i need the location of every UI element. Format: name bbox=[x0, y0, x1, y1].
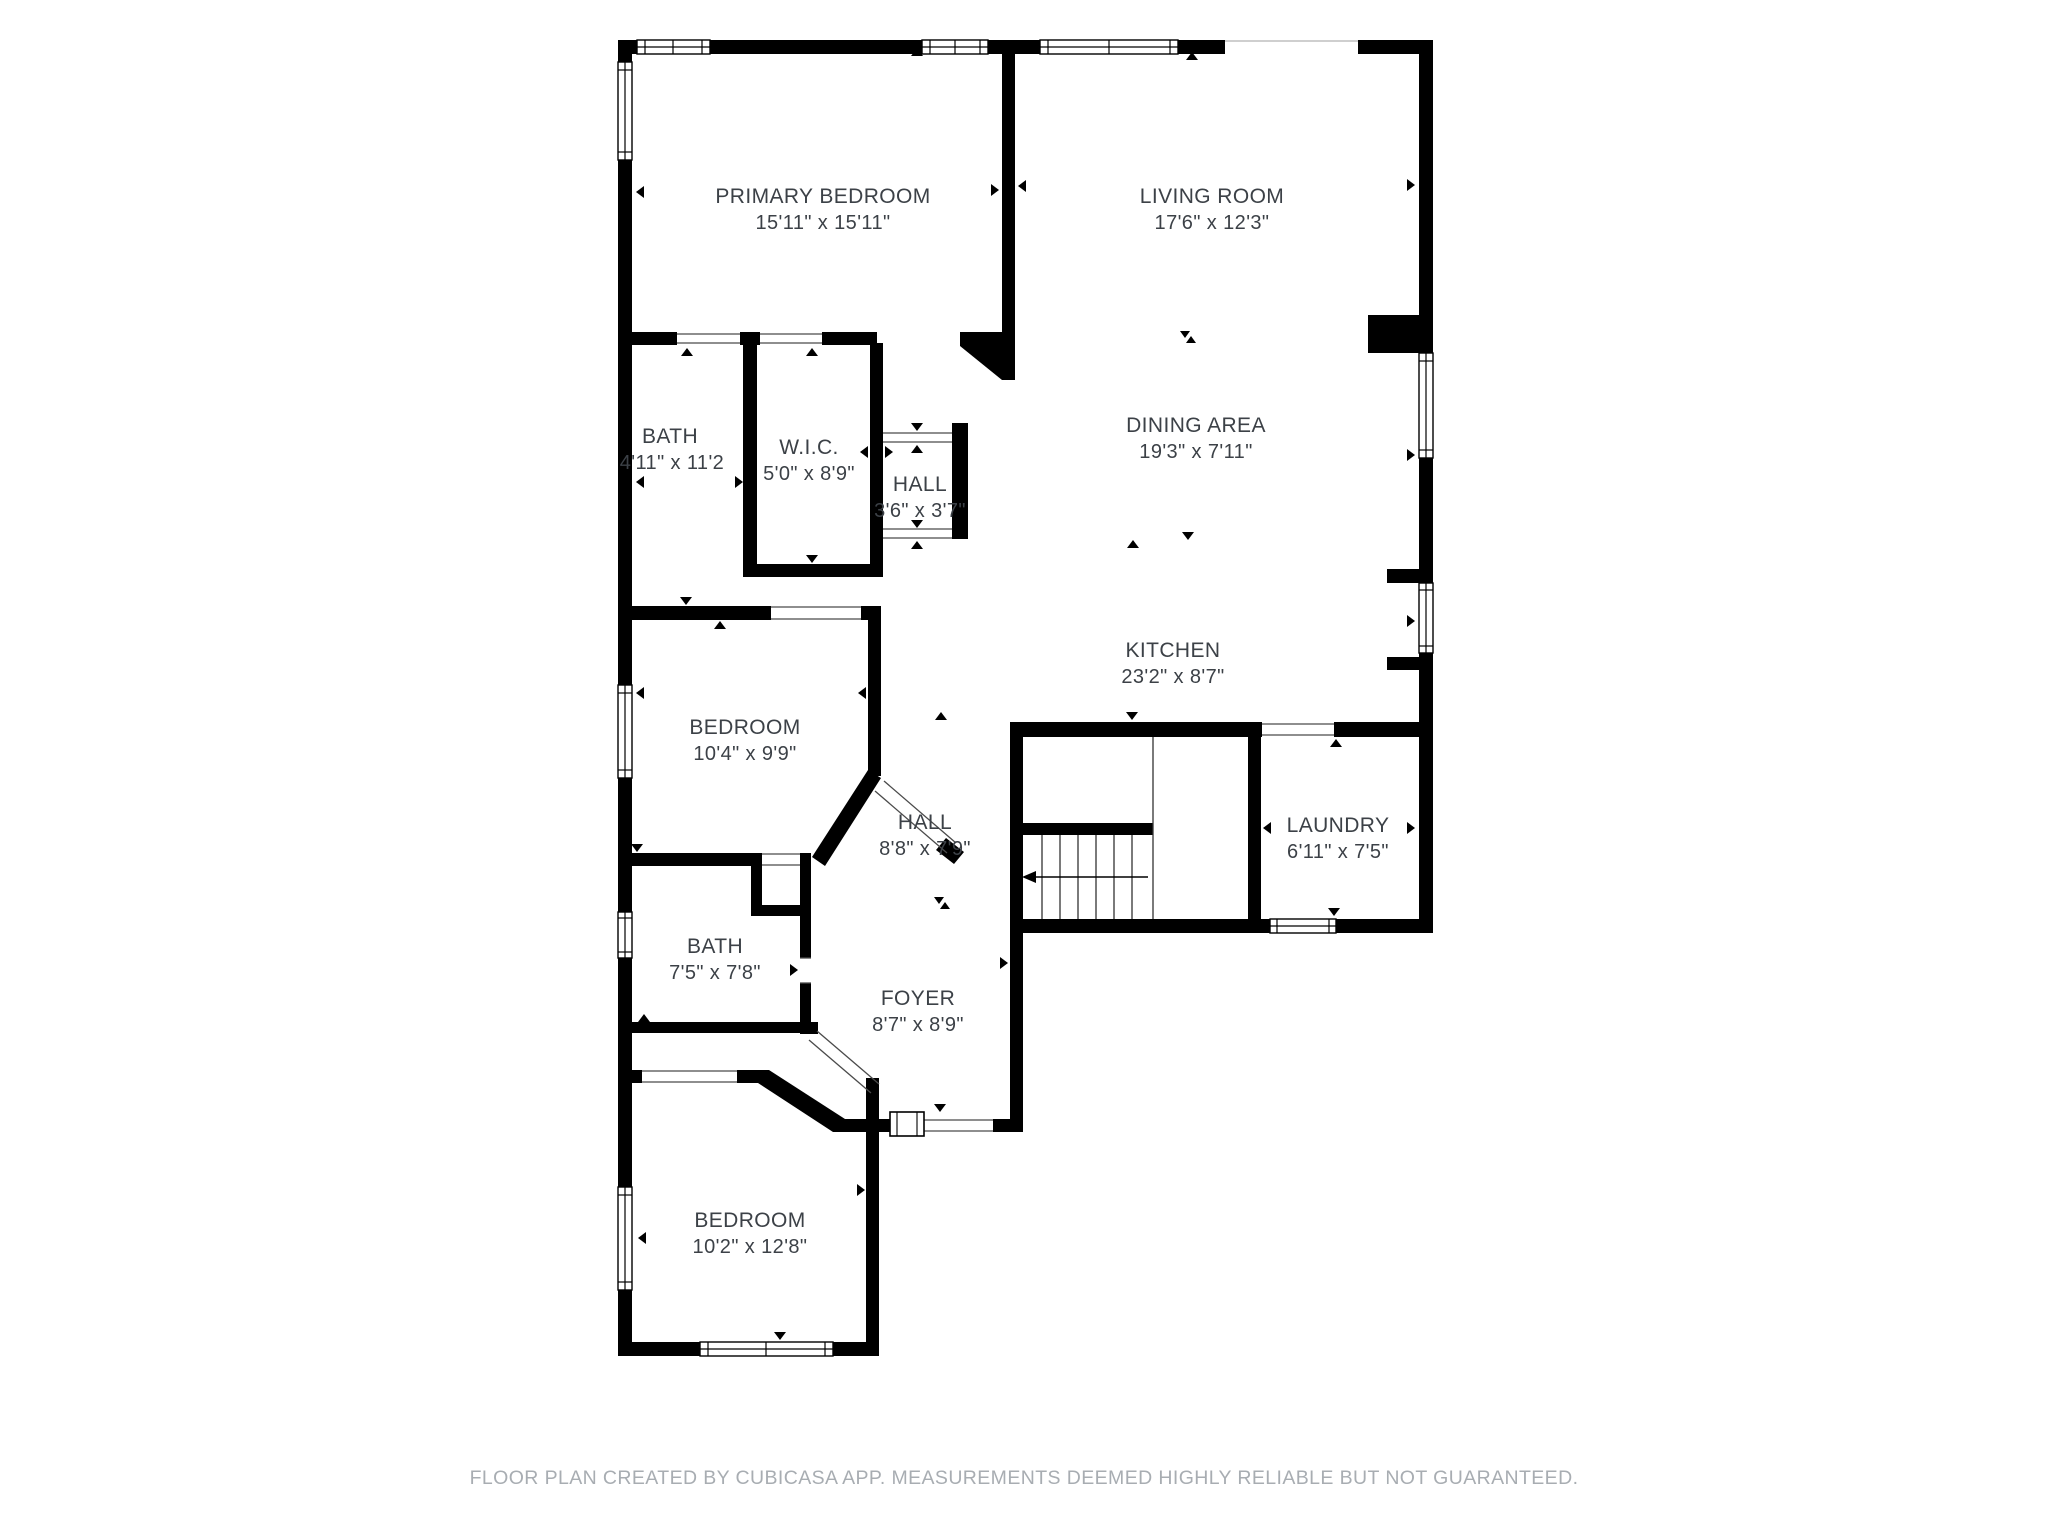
dims-laundry: 6'11" x 7'5" bbox=[1287, 841, 1389, 863]
measurement-markers bbox=[631, 48, 1415, 1340]
angled-wall-bedroom-bottom bbox=[758, 1070, 845, 1132]
dims-bedroom-bottom: 10'2" x 12'8" bbox=[693, 1236, 808, 1258]
front-door-leaf bbox=[890, 1112, 924, 1136]
front-door bbox=[890, 1112, 924, 1136]
angled-wall-bedroom-middle bbox=[812, 770, 881, 866]
dims-bath-upper: 4'11" x 11'2 bbox=[620, 452, 724, 474]
dims-primary-bedroom: 15'11" x 15'11" bbox=[756, 212, 891, 234]
label-dining-area: DINING AREA bbox=[1126, 414, 1266, 437]
label-wic: W.I.C. bbox=[779, 436, 839, 459]
wall-stub-upper bbox=[1387, 569, 1419, 583]
label-laundry: LAUNDRY bbox=[1287, 814, 1390, 837]
dims-bedroom-middle: 10'4" x 9'9" bbox=[693, 743, 796, 765]
corner-notch bbox=[960, 332, 1015, 380]
label-bedroom-middle: BEDROOM bbox=[689, 716, 800, 739]
dims-living-room: 17'6" x 12'3" bbox=[1155, 212, 1270, 234]
label-hall-main: HALL bbox=[898, 811, 952, 834]
label-living-room: LIVING ROOM bbox=[1140, 185, 1284, 208]
label-kitchen: KITCHEN bbox=[1126, 639, 1221, 662]
diag-stub-a bbox=[800, 1022, 818, 1034]
exterior-walls bbox=[618, 40, 1433, 1356]
label-bath-lower: BATH bbox=[687, 935, 743, 958]
dims-bath-lower: 7'5" x 7'8" bbox=[669, 962, 761, 984]
label-primary-bedroom: PRIMARY BEDROOM bbox=[715, 185, 930, 208]
footer-disclaimer: FLOOR PLAN CREATED BY CUBICASA APP. MEAS… bbox=[470, 1467, 1579, 1489]
floor-plan-page: PRIMARY BEDROOM 15'11" x 15'11" LIVING R… bbox=[0, 0, 2048, 1536]
dims-hall-small: 3'6" x 3'7" bbox=[874, 500, 966, 522]
fireplace-bump bbox=[1368, 315, 1433, 353]
windows bbox=[618, 40, 1433, 1356]
label-bedroom-bottom: BEDROOM bbox=[694, 1209, 805, 1232]
label-hall-small: HALL bbox=[893, 473, 947, 496]
stair-arrow-head bbox=[1022, 871, 1036, 883]
dims-foyer: 8'7" x 8'9" bbox=[872, 1014, 964, 1036]
dims-kitchen: 23'2" x 8'7" bbox=[1121, 666, 1224, 688]
stair-landing-wall bbox=[1023, 823, 1153, 835]
dims-wic: 5'0" x 8'9" bbox=[763, 463, 855, 485]
dims-hall-main: 8'8" x 7'9" bbox=[879, 838, 971, 860]
label-bath-upper: BATH bbox=[642, 425, 698, 448]
dims-dining-area: 19'3" x 7'11" bbox=[1139, 441, 1252, 463]
wall-stub-lower bbox=[1387, 657, 1419, 670]
label-foyer: FOYER bbox=[881, 987, 955, 1010]
floor-plan-canvas: PRIMARY BEDROOM 15'11" x 15'11" LIVING R… bbox=[0, 0, 2048, 1536]
